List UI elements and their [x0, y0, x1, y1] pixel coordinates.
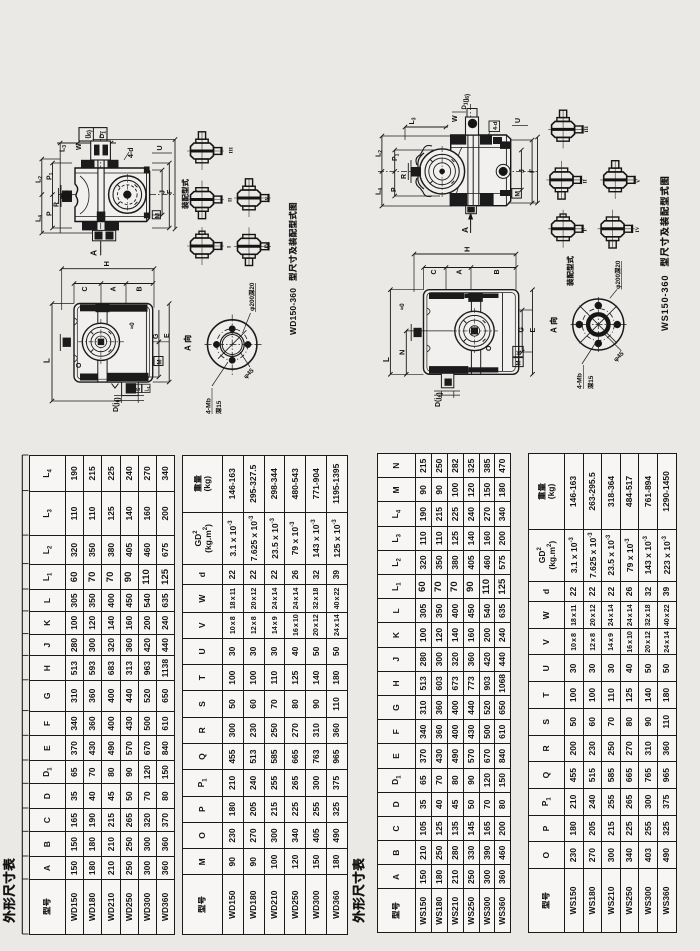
svg-text:L3: L3	[409, 117, 418, 124]
svg-text:4-d: 4-d	[128, 148, 135, 159]
svg-text:WS150-360: WS150-360	[660, 275, 670, 331]
svg-text:L4: L4	[36, 215, 45, 222]
svg-text:M: M	[155, 213, 162, 218]
svg-text:I: I	[227, 246, 233, 248]
svg-text:P: P	[391, 187, 398, 192]
svg-text:4-Mb: 4-Mb	[206, 398, 213, 414]
svg-text:A: A	[111, 286, 118, 291]
svg-text:M: M	[517, 361, 523, 366]
svg-text:20: 20	[249, 282, 256, 290]
svg-text:(j6): (j6)	[86, 130, 94, 138]
svg-text:A: A	[184, 345, 193, 351]
svg-text:WD150-360: WD150-360	[288, 288, 298, 335]
svg-text:L2: L2	[376, 150, 385, 157]
svg-text:IV: IV	[635, 226, 641, 232]
svg-text:φ45: φ45	[612, 350, 625, 363]
svg-text:H: H	[462, 247, 471, 252]
svg-text:L: L	[43, 358, 52, 363]
svg-text:J: J	[519, 169, 526, 173]
svg-text:P1: P1	[47, 172, 56, 180]
svg-text:W: W	[76, 143, 83, 150]
svg-text:C: C	[431, 269, 438, 274]
svg-text:V: V	[636, 179, 642, 183]
svg-text:G: G	[519, 327, 526, 333]
svg-text:J: J	[160, 190, 167, 194]
svg-text:G: G	[153, 333, 160, 339]
svg-text:15: 15	[588, 375, 595, 383]
svg-text:B: B	[137, 286, 144, 291]
svg-text:N: N	[398, 350, 407, 355]
svg-text:II: II	[228, 198, 234, 202]
svg-text:V: V	[265, 197, 271, 201]
svg-text:O: O	[486, 345, 493, 351]
svg-text:L1: L1	[145, 385, 151, 391]
svg-text:φ45: φ45	[242, 367, 255, 380]
svg-text:F: F	[167, 189, 174, 194]
svg-text:φ200,: φ200,	[615, 272, 622, 289]
svg-text:IV: IV	[264, 242, 270, 248]
svg-text:III: III	[584, 126, 590, 132]
svg-text:L: L	[382, 357, 391, 362]
svg-text:M: M	[515, 191, 522, 196]
svg-text:6): 6)	[115, 397, 122, 402]
svg-text:D(j: D(j	[435, 398, 442, 407]
svg-text:K: K	[516, 350, 523, 355]
svg-text:L3: L3	[60, 145, 69, 152]
svg-text:H: H	[102, 261, 111, 266]
svg-text:II: II	[583, 179, 589, 183]
svg-text:20: 20	[615, 260, 622, 268]
svg-text:≈0: ≈0	[130, 322, 136, 329]
svg-text:6): 6)	[437, 392, 444, 397]
svg-text:R: R	[54, 202, 61, 207]
svg-text:C: C	[82, 286, 89, 291]
svg-text:E: E	[530, 328, 537, 333]
svg-text:φ200,: φ200,	[249, 294, 256, 311]
svg-text:15: 15	[216, 400, 223, 408]
svg-text:D1(j6): D1(j6)	[462, 94, 471, 110]
svg-text:≈0: ≈0	[400, 303, 406, 310]
svg-text:A: A	[460, 227, 470, 233]
svg-text:D(j: D(j	[113, 403, 120, 412]
svg-text:P1: P1	[392, 153, 401, 161]
svg-text:D1: D1	[99, 131, 108, 139]
svg-text:4-Mb: 4-Mb	[577, 373, 584, 389]
svg-text:O: O	[76, 362, 83, 368]
svg-text:B: B	[494, 269, 501, 274]
svg-text:R: R	[401, 174, 408, 179]
svg-text:III: III	[229, 147, 235, 153]
svg-text:L4: L4	[376, 188, 385, 195]
svg-text:U: U	[157, 145, 164, 150]
svg-text:I: I	[582, 229, 588, 231]
svg-text:L2: L2	[36, 176, 45, 183]
svg-text:A: A	[457, 269, 464, 274]
svg-text:F: F	[530, 168, 537, 173]
svg-text:P: P	[47, 211, 54, 216]
svg-text:A: A	[550, 327, 559, 333]
svg-text:U: U	[515, 118, 522, 123]
svg-text:E: E	[164, 333, 171, 338]
svg-text:A: A	[89, 250, 99, 256]
svg-text:4-d: 4-d	[493, 122, 499, 130]
svg-text:M: M	[158, 360, 164, 365]
svg-text:W: W	[452, 115, 459, 122]
